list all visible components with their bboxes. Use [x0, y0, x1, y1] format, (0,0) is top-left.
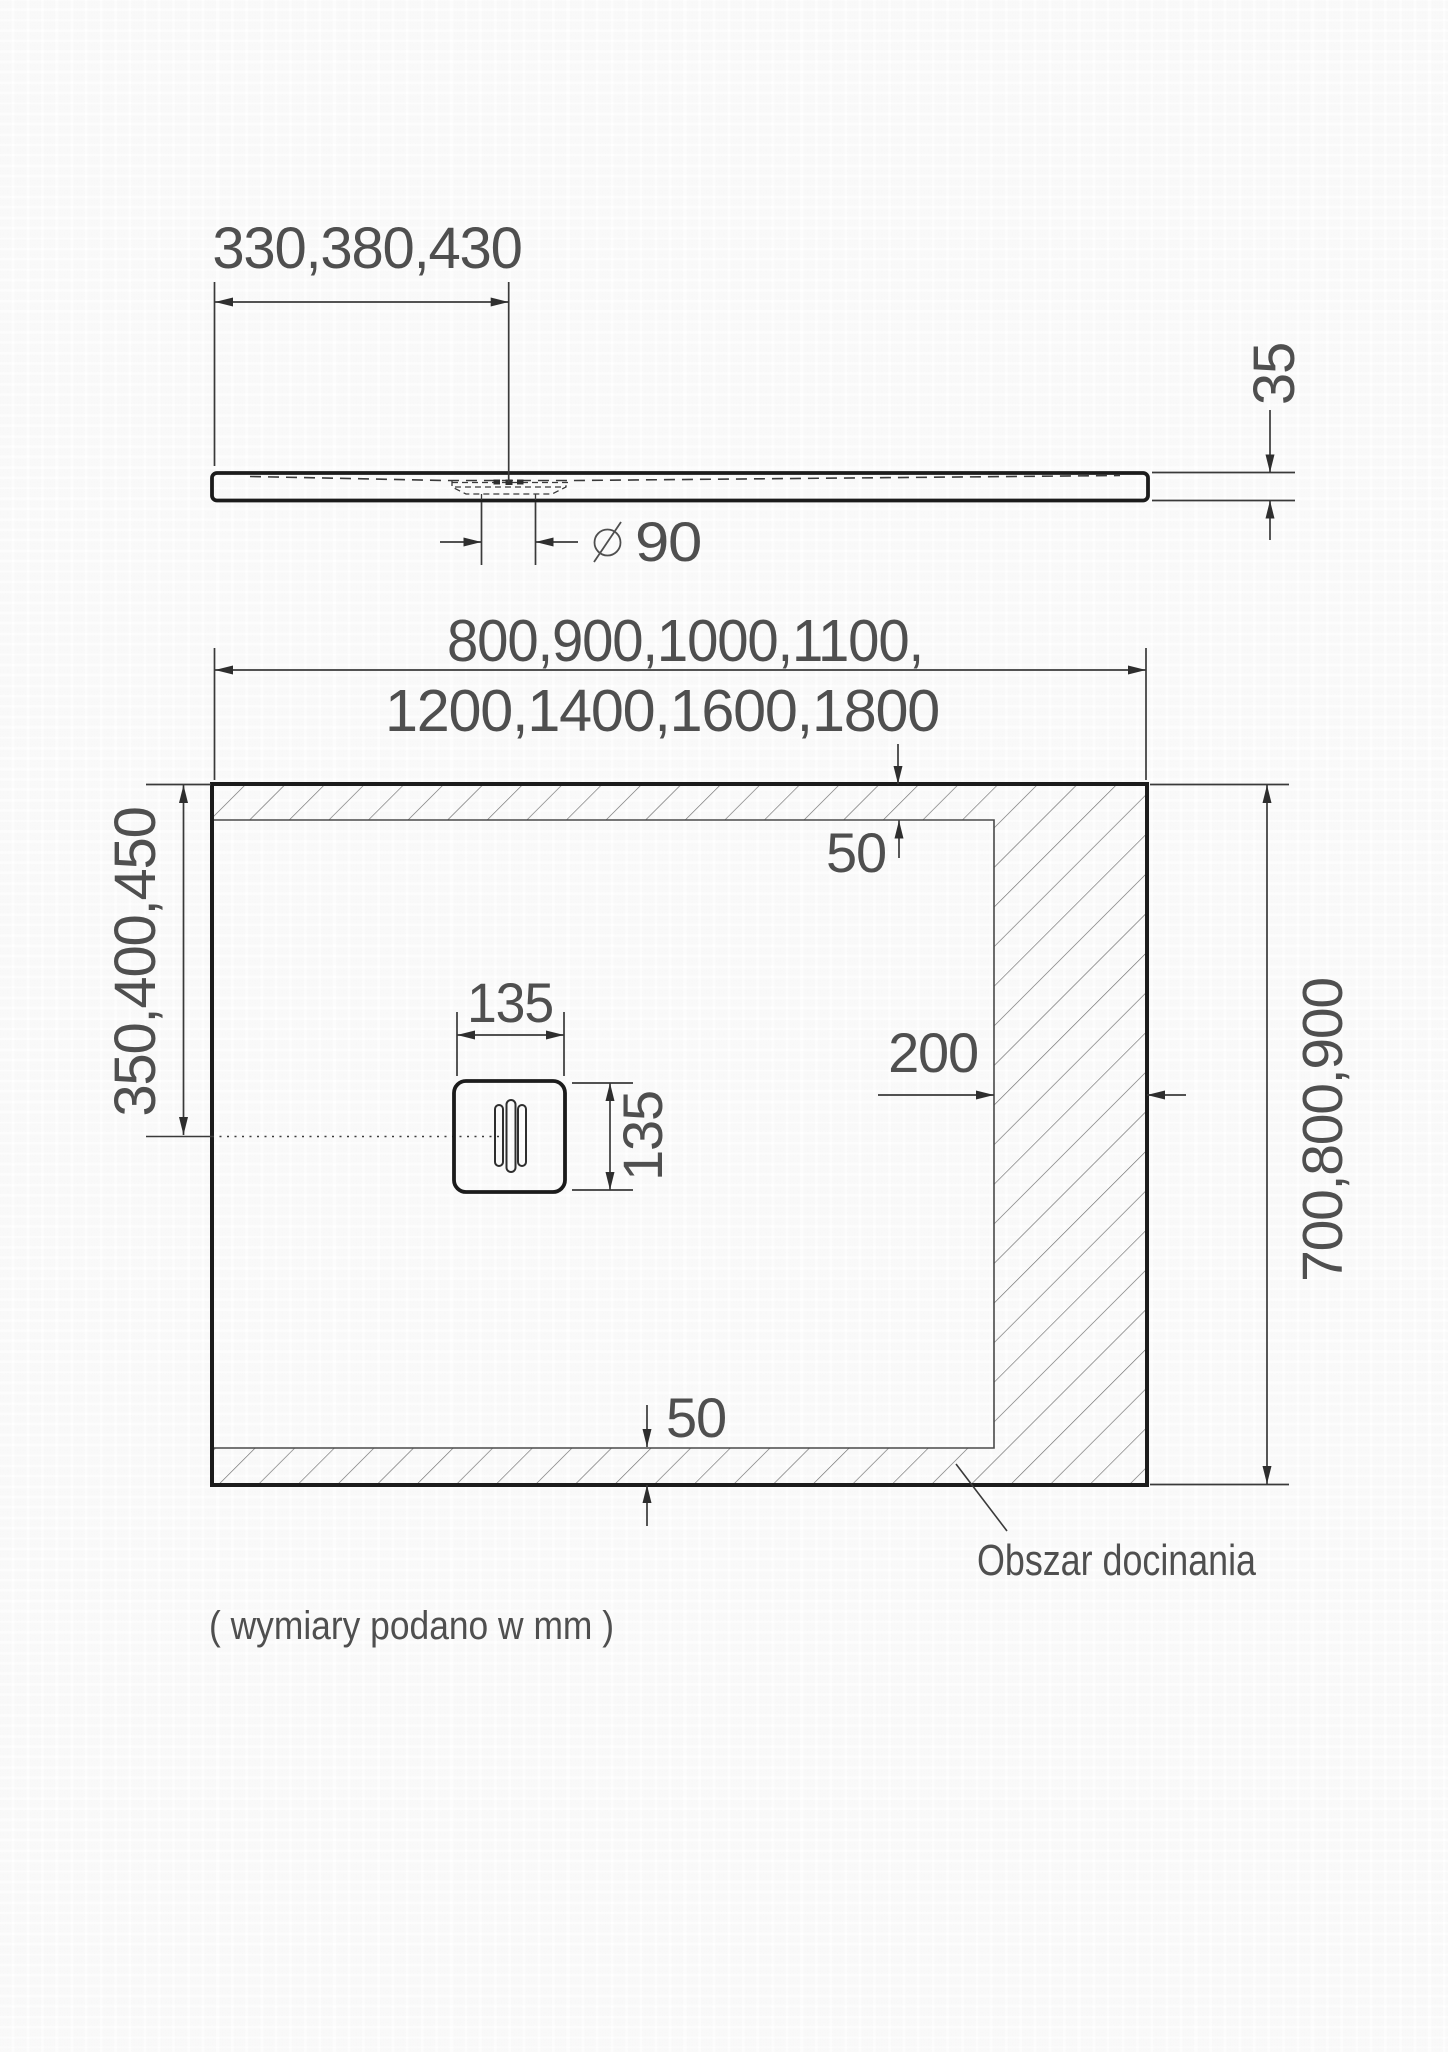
svg-text:1200,1400,1600,1800: 1200,1400,1600,1800 [385, 678, 939, 744]
svg-text:200: 200 [888, 1021, 978, 1084]
svg-text:( wymiary podano w mm ): ( wymiary podano w mm ) [209, 1604, 614, 1648]
svg-text:50: 50 [666, 1386, 726, 1449]
svg-text:Obszar docinania: Obszar docinania [977, 1536, 1256, 1585]
svg-text:330,380,430: 330,380,430 [212, 216, 521, 281]
svg-text:135: 135 [467, 971, 553, 1034]
svg-text:50: 50 [826, 821, 886, 884]
svg-text:35: 35 [1242, 343, 1307, 405]
svg-text:90: 90 [635, 510, 701, 573]
svg-text:350,400,450: 350,400,450 [103, 807, 168, 1116]
svg-text:800,900,1000,1100,: 800,900,1000,1100, [447, 608, 923, 674]
svg-text:135: 135 [611, 1091, 674, 1181]
svg-text:700,800,900: 700,800,900 [1291, 978, 1355, 1282]
